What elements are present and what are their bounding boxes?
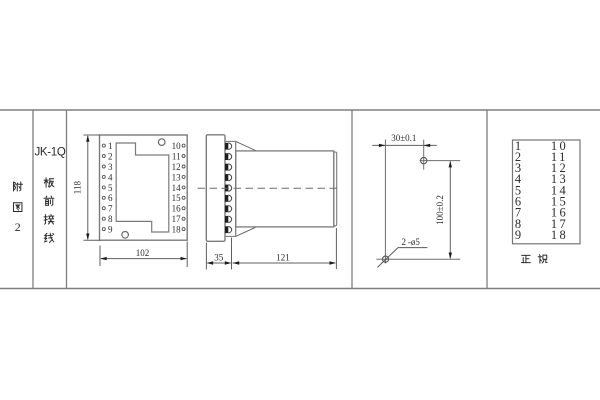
svg-text:121: 121 [276, 252, 290, 262]
svg-text:30±0.1: 30±0.1 [391, 133, 416, 143]
svg-text:3: 3 [108, 162, 113, 172]
svg-text:102: 102 [136, 248, 150, 258]
svg-text:10: 10 [172, 141, 182, 151]
svg-text:14: 14 [172, 183, 182, 193]
svg-text:9: 9 [515, 228, 521, 242]
svg-text:18: 18 [172, 225, 182, 235]
svg-text:17: 17 [172, 214, 182, 224]
svg-text:2: 2 [108, 151, 113, 161]
svg-text:7: 7 [108, 204, 113, 214]
svg-text:9: 9 [108, 225, 113, 235]
svg-text:2: 2 [15, 220, 21, 234]
svg-text:18: 18 [551, 228, 568, 242]
svg-text:16: 16 [172, 204, 182, 214]
svg-text:2 -ø5: 2 -ø5 [402, 237, 421, 247]
svg-text:35: 35 [214, 252, 224, 262]
svg-text:6: 6 [108, 193, 113, 203]
svg-text:12: 12 [172, 162, 181, 172]
svg-text:5: 5 [108, 183, 113, 193]
svg-text:8: 8 [108, 214, 113, 224]
svg-text:13: 13 [172, 172, 182, 182]
svg-text:1: 1 [108, 141, 113, 151]
svg-text:100±0.2: 100±0.2 [435, 195, 445, 225]
svg-text:15: 15 [172, 193, 182, 203]
svg-text:JK-1Q: JK-1Q [34, 147, 65, 159]
svg-text:118: 118 [72, 181, 82, 195]
svg-text:4: 4 [108, 172, 113, 182]
svg-text:11: 11 [172, 151, 181, 161]
